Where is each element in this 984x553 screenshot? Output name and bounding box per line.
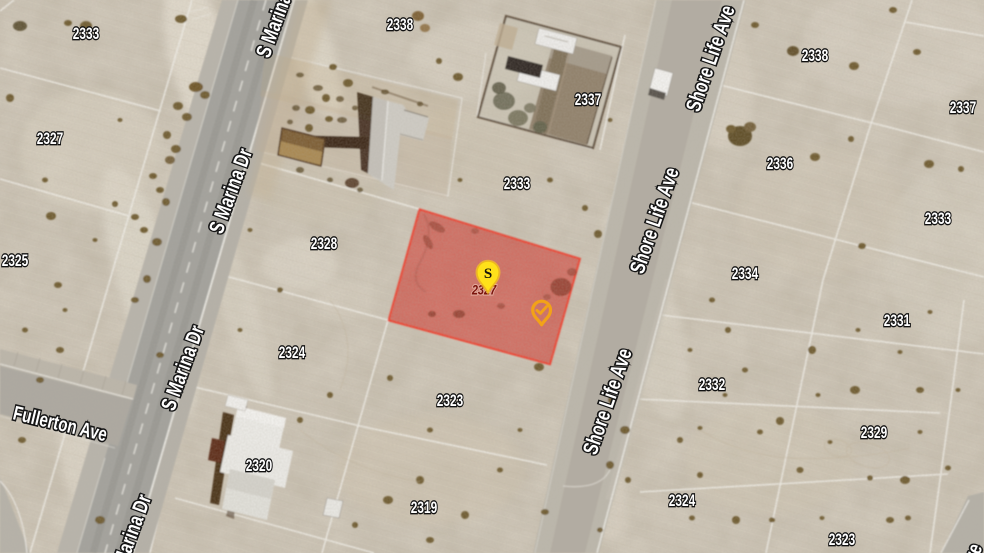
svg-text:2338: 2338 <box>802 47 828 65</box>
svg-text:2323: 2323 <box>829 531 855 549</box>
svg-text:2334: 2334 <box>732 265 758 283</box>
svg-text:2333: 2333 <box>73 25 99 43</box>
svg-text:2338: 2338 <box>387 16 413 34</box>
svg-text:2329: 2329 <box>861 424 887 442</box>
svg-text:2328: 2328 <box>311 235 337 253</box>
svg-text:2332: 2332 <box>699 376 725 394</box>
svg-text:2323: 2323 <box>437 392 463 410</box>
svg-text:2337: 2337 <box>575 91 601 109</box>
svg-text:2324: 2324 <box>669 492 695 510</box>
svg-text:2320: 2320 <box>246 457 272 475</box>
svg-text:2331: 2331 <box>884 312 910 330</box>
svg-text:2319: 2319 <box>411 499 437 517</box>
svg-text:2333: 2333 <box>504 175 530 193</box>
svg-text:2337: 2337 <box>950 99 976 117</box>
svg-text:2333: 2333 <box>925 210 951 228</box>
svg-text:2325: 2325 <box>2 252 28 270</box>
svg-text:S: S <box>484 266 492 282</box>
svg-text:2324: 2324 <box>279 344 305 362</box>
svg-text:2327: 2327 <box>37 130 63 148</box>
svg-text:2336: 2336 <box>767 155 793 173</box>
